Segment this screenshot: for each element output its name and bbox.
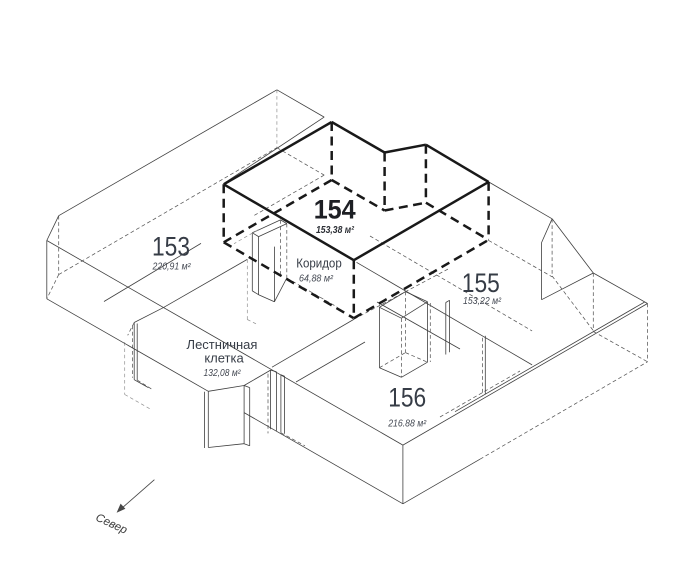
svg-text:153: 153 [152,231,190,261]
svg-text:216.88 м²: 216.88 м² [387,418,426,429]
svg-text:155: 155 [462,268,500,298]
svg-text:153,22 м²: 153,22 м² [463,296,502,307]
svg-text:132,08 м²: 132,08 м² [204,368,242,379]
svg-text:клетка: клетка [204,351,244,366]
svg-text:153,38 м²: 153,38 м² [316,225,355,236]
svg-text:Коридор: Коридор [296,255,342,270]
svg-text:220,91 м²: 220,91 м² [152,262,191,273]
svg-text:154: 154 [314,195,356,225]
svg-text:156: 156 [388,383,426,413]
svg-text:64,88 м²: 64,88 м² [299,274,334,285]
